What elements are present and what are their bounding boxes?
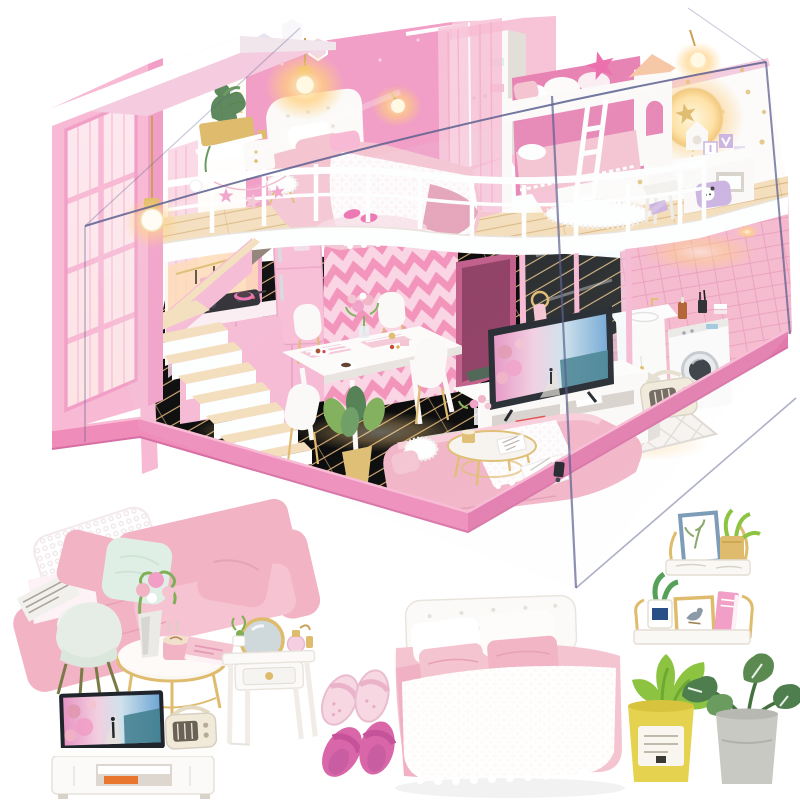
pot-label (652, 608, 668, 620)
orange-book (104, 776, 138, 784)
detail-tv-console (52, 690, 220, 799)
railing-ornament (190, 180, 202, 192)
dollhouse-product-photo (0, 0, 800, 800)
photo-canvas (0, 0, 800, 800)
crochet-coverlet (402, 666, 616, 785)
media-console (52, 748, 220, 799)
gray-pot (716, 714, 778, 784)
shelf-slab (634, 630, 750, 644)
bird-frame (675, 597, 714, 633)
pink-shelf-book (714, 591, 739, 633)
pink-pillow-right (195, 536, 275, 609)
blue-botanical-frame (680, 513, 720, 564)
